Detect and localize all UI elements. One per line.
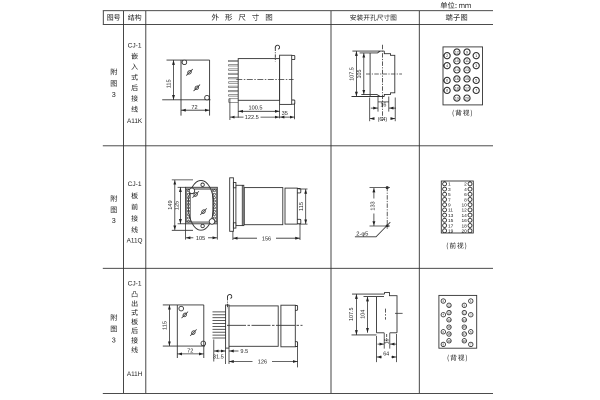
svg-text:5: 5 bbox=[475, 79, 477, 83]
svg-text:11: 11 bbox=[463, 311, 466, 315]
svg-text:19: 19 bbox=[447, 339, 451, 343]
svg-text:126: 126 bbox=[258, 360, 267, 366]
svg-text:16: 16 bbox=[447, 325, 451, 329]
svg-text:14: 14 bbox=[455, 68, 459, 72]
svg-text:1: 1 bbox=[448, 182, 451, 188]
svg-text:9: 9 bbox=[464, 303, 466, 307]
svg-text:A11H: A11H bbox=[127, 371, 143, 378]
svg-text:10: 10 bbox=[455, 59, 459, 63]
svg-text:12: 12 bbox=[461, 208, 467, 214]
svg-text:15: 15 bbox=[465, 77, 469, 81]
svg-text:100.5: 100.5 bbox=[249, 106, 263, 112]
svg-text:11: 11 bbox=[465, 59, 469, 63]
svg-text:13: 13 bbox=[463, 318, 467, 322]
svg-text:18: 18 bbox=[461, 223, 467, 229]
svg-text:3: 3 bbox=[112, 90, 116, 99]
svg-text:6: 6 bbox=[446, 79, 448, 83]
svg-text:7: 7 bbox=[475, 89, 477, 93]
svg-text:7: 7 bbox=[448, 197, 451, 203]
svg-text:3: 3 bbox=[448, 187, 451, 193]
svg-text:107.5: 107.5 bbox=[349, 307, 355, 321]
svg-text:5: 5 bbox=[470, 330, 472, 334]
svg-text:17: 17 bbox=[465, 86, 469, 90]
svg-text:6: 6 bbox=[443, 330, 445, 334]
svg-text:A11K: A11K bbox=[127, 118, 143, 125]
svg-text:133: 133 bbox=[371, 201, 377, 210]
svg-text:16: 16 bbox=[385, 339, 391, 345]
svg-text:11: 11 bbox=[448, 208, 453, 214]
svg-text:115: 115 bbox=[167, 79, 173, 88]
svg-text:10: 10 bbox=[461, 203, 467, 209]
svg-text:64: 64 bbox=[383, 352, 389, 358]
svg-text:4: 4 bbox=[464, 187, 467, 193]
svg-text:3: 3 bbox=[112, 335, 116, 344]
svg-text:16: 16 bbox=[455, 77, 459, 81]
svg-text:18: 18 bbox=[447, 332, 451, 336]
svg-text:20: 20 bbox=[465, 96, 469, 100]
svg-text:122.5: 122.5 bbox=[245, 115, 259, 121]
svg-text:7: 7 bbox=[470, 342, 472, 346]
svg-text:3: 3 bbox=[470, 313, 472, 317]
svg-text:CJ-1: CJ-1 bbox=[128, 181, 142, 188]
svg-text:115: 115 bbox=[299, 202, 305, 211]
svg-text:105: 105 bbox=[196, 236, 205, 242]
svg-text:13: 13 bbox=[465, 68, 469, 72]
svg-text:12: 12 bbox=[447, 303, 451, 307]
svg-text:15: 15 bbox=[448, 218, 454, 224]
svg-text:15: 15 bbox=[463, 325, 467, 329]
svg-text:14: 14 bbox=[461, 213, 467, 219]
svg-text:6: 6 bbox=[464, 192, 467, 198]
svg-text:35: 35 bbox=[282, 111, 288, 117]
svg-text:(64): (64) bbox=[378, 117, 388, 123]
svg-text:A11Q: A11Q bbox=[127, 238, 143, 245]
svg-text:3: 3 bbox=[112, 216, 116, 225]
svg-text:3: 3 bbox=[475, 64, 477, 68]
svg-text:104: 104 bbox=[360, 310, 366, 319]
svg-text:8: 8 bbox=[464, 197, 467, 203]
svg-text:16: 16 bbox=[461, 218, 467, 224]
svg-text:20: 20 bbox=[461, 229, 467, 235]
svg-text:17: 17 bbox=[463, 332, 467, 336]
svg-text:4: 4 bbox=[443, 313, 445, 317]
svg-text:13: 13 bbox=[448, 213, 454, 219]
svg-text:149: 149 bbox=[168, 200, 174, 209]
svg-text:8: 8 bbox=[443, 342, 445, 346]
svg-text:5: 5 bbox=[448, 192, 451, 198]
svg-text:1: 1 bbox=[475, 54, 477, 58]
svg-text:2: 2 bbox=[443, 299, 445, 303]
svg-text:1: 1 bbox=[470, 299, 472, 303]
svg-text:9: 9 bbox=[466, 50, 468, 54]
svg-text:72: 72 bbox=[191, 105, 197, 111]
svg-text:9.5: 9.5 bbox=[240, 349, 248, 355]
svg-text:72: 72 bbox=[187, 348, 193, 354]
svg-text:19: 19 bbox=[455, 96, 459, 100]
svg-text:31.5: 31.5 bbox=[213, 354, 224, 360]
svg-text:9: 9 bbox=[448, 203, 451, 209]
svg-text:2: 2 bbox=[464, 182, 467, 188]
svg-text:12: 12 bbox=[455, 50, 459, 54]
svg-text:18: 18 bbox=[455, 86, 459, 90]
svg-text:CJ-1: CJ-1 bbox=[128, 43, 142, 50]
svg-text:8: 8 bbox=[446, 89, 448, 93]
svg-text:16: 16 bbox=[380, 103, 386, 109]
svg-text:17: 17 bbox=[448, 223, 454, 229]
svg-text:156: 156 bbox=[262, 236, 271, 242]
svg-text:125: 125 bbox=[175, 201, 181, 210]
svg-text:115: 115 bbox=[162, 321, 168, 330]
svg-text:105: 105 bbox=[357, 70, 363, 79]
svg-text:20: 20 bbox=[463, 339, 467, 343]
svg-text:CJ-1: CJ-1 bbox=[128, 281, 142, 288]
svg-text:19: 19 bbox=[448, 229, 454, 235]
svg-text:4: 4 bbox=[446, 64, 448, 68]
svg-text:14: 14 bbox=[447, 318, 451, 322]
svg-text:2: 2 bbox=[446, 54, 448, 58]
svg-text:10: 10 bbox=[447, 311, 451, 315]
svg-text:2-φ5: 2-φ5 bbox=[356, 231, 368, 237]
svg-text:107.5: 107.5 bbox=[349, 67, 355, 81]
